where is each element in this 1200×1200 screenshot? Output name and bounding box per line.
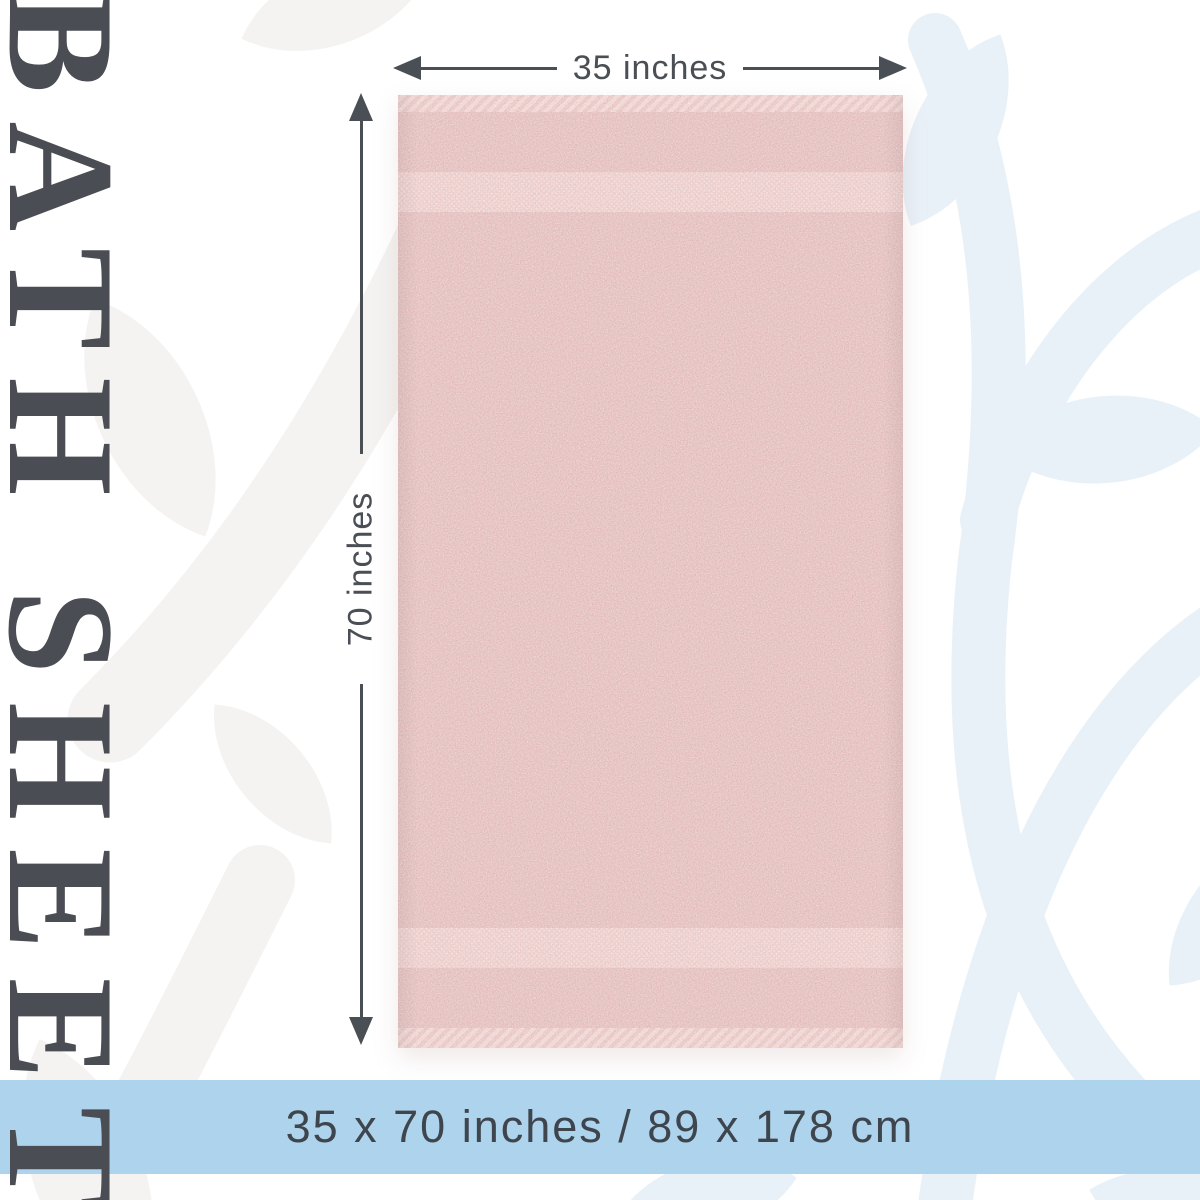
towel-graphic — [398, 95, 903, 1048]
width-dimension-arrow: 35 inches — [393, 51, 907, 85]
width-dimension-label: 35 inches — [557, 49, 744, 88]
height-dimension-arrow: 70 inches — [344, 93, 378, 1045]
page-title-vertical: BATH SHEET — [0, 0, 122, 1200]
arrow-right-icon — [879, 56, 907, 80]
height-dimension-label-box: 70 inches — [344, 454, 378, 684]
size-banner: 35 x 70 inches / 89 x 178 cm — [0, 1080, 1200, 1174]
arrow-up-icon — [349, 93, 373, 121]
size-banner-label: 35 x 70 inches / 89 x 178 cm — [286, 1101, 915, 1153]
height-dimension-label: 70 inches — [342, 492, 381, 647]
product-infographic: 35 inches 70 inches 35 x 70 inches / 89 … — [0, 0, 1200, 1200]
dimension-line — [421, 67, 557, 70]
arrow-down-icon — [349, 1017, 373, 1045]
dimension-line — [360, 121, 363, 454]
dimension-line — [360, 684, 363, 1017]
arrow-left-icon — [393, 56, 421, 80]
dimension-line — [743, 67, 879, 70]
towel-image — [398, 95, 903, 1048]
